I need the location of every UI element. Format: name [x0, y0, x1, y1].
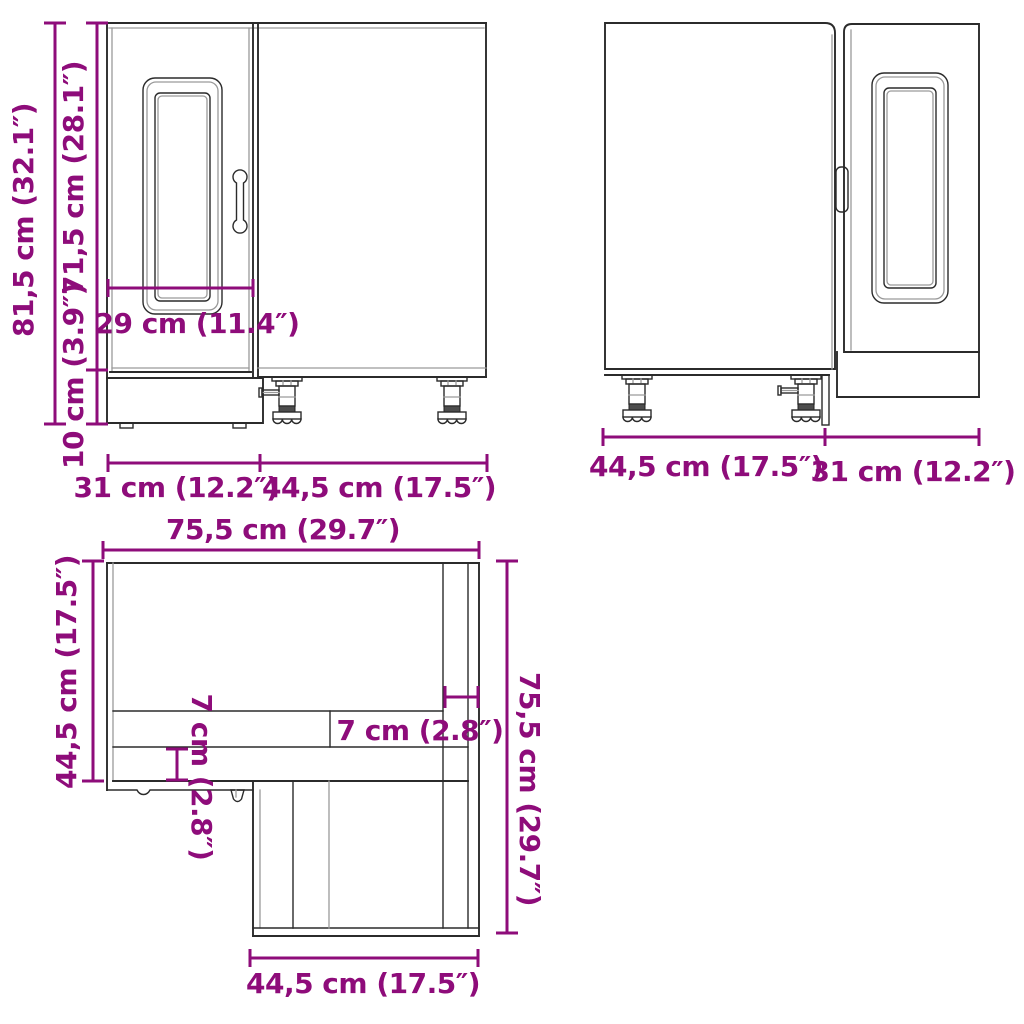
dim-label-top-recess-depth: 7 cm (2.8″) — [187, 694, 215, 861]
front-view-drawing — [107, 23, 486, 428]
dim-label-top-left-depth: 44,5 cm (17.5″) — [53, 555, 81, 789]
dim-label-top-bottom-width: 44,5 cm (17.5″) — [246, 970, 480, 998]
dimension-diagram: 81,5 cm (32.1″) 71,5 cm (28.1″) 10 cm (3… — [0, 0, 1024, 1024]
dim-label-front-right-width: 44,5 cm (17.5″) — [262, 474, 496, 502]
adjustable-foot — [259, 377, 467, 424]
dim-label-front-cabinet-height: 71,5 cm (28.1″) — [60, 61, 88, 295]
dim-label-top-width: 75,5 cm (29.7″) — [166, 516, 400, 544]
adjustable-foot — [622, 375, 821, 422]
door-handle — [836, 167, 848, 212]
door-handle — [233, 170, 247, 233]
dim-label-back-right-width: 31 cm (12.2″) — [811, 458, 1016, 486]
back-view-drawing — [605, 23, 979, 425]
dim-label-front-door-width: 29 cm (11.4″) — [95, 310, 300, 338]
dim-label-front-total-height: 81,5 cm (32.1″) — [10, 103, 38, 337]
dim-label-top-right-depth: 75,5 cm (29.7″) — [515, 672, 543, 906]
hinge-detail — [231, 790, 244, 802]
top-view-drawing — [107, 563, 479, 936]
front-view-dim-lines — [44, 23, 487, 472]
top-view-dim-lines — [82, 541, 518, 967]
dim-label-front-leg-height: 10 cm (3.9″) — [60, 283, 88, 469]
back-view-dim-lines — [603, 428, 979, 446]
technical-drawing-svg — [0, 0, 1024, 1024]
dim-label-top-front-panel-depth: 7 cm (2.8″) — [337, 717, 504, 745]
dim-label-front-left-width: 31 cm (12.2″) — [74, 474, 279, 502]
dim-label-back-left-width: 44,5 cm (17.5″) — [589, 453, 823, 481]
